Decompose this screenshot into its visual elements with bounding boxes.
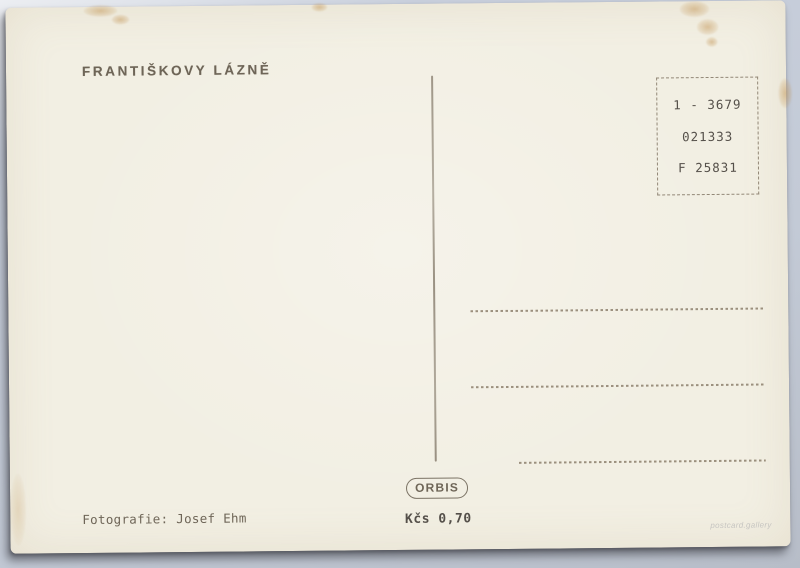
foxing-spot bbox=[706, 37, 718, 47]
price-label: Kčs 0,70 bbox=[398, 511, 478, 527]
postcard-back: FRANTIŠKOVY LÁZNĚ 1 - 3679 021333 F 2583… bbox=[5, 0, 790, 553]
foxing-spot bbox=[311, 3, 327, 12]
address-line-1 bbox=[470, 307, 764, 312]
foxing-spot bbox=[83, 5, 117, 17]
scan-background: { "colors": { "card_bg": "#f2efe3", "ink… bbox=[0, 0, 800, 568]
scan-watermark: postcard.gallery bbox=[710, 520, 771, 530]
foxing-spot bbox=[697, 19, 719, 35]
address-line-2 bbox=[471, 383, 765, 388]
foxing-spot bbox=[111, 15, 129, 25]
foxing-spot bbox=[778, 78, 792, 108]
stamp-box-code-2: 021333 bbox=[682, 128, 733, 143]
stamp-box: 1 - 3679 021333 F 25831 bbox=[656, 77, 759, 196]
foxing-spot bbox=[10, 474, 27, 546]
foxing-spot bbox=[679, 1, 709, 17]
stamp-box-code-3: F 25831 bbox=[678, 159, 738, 175]
photographer-credit: Fotografie: Josef Ehm bbox=[82, 510, 246, 527]
stamp-box-code-1: 1 - 3679 bbox=[673, 97, 741, 113]
divider-line bbox=[431, 76, 437, 462]
postcard-title: FRANTIŠKOVY LÁZNĚ bbox=[82, 62, 272, 79]
address-line-3 bbox=[519, 459, 766, 463]
orbis-logo: ORBIS bbox=[406, 477, 468, 499]
